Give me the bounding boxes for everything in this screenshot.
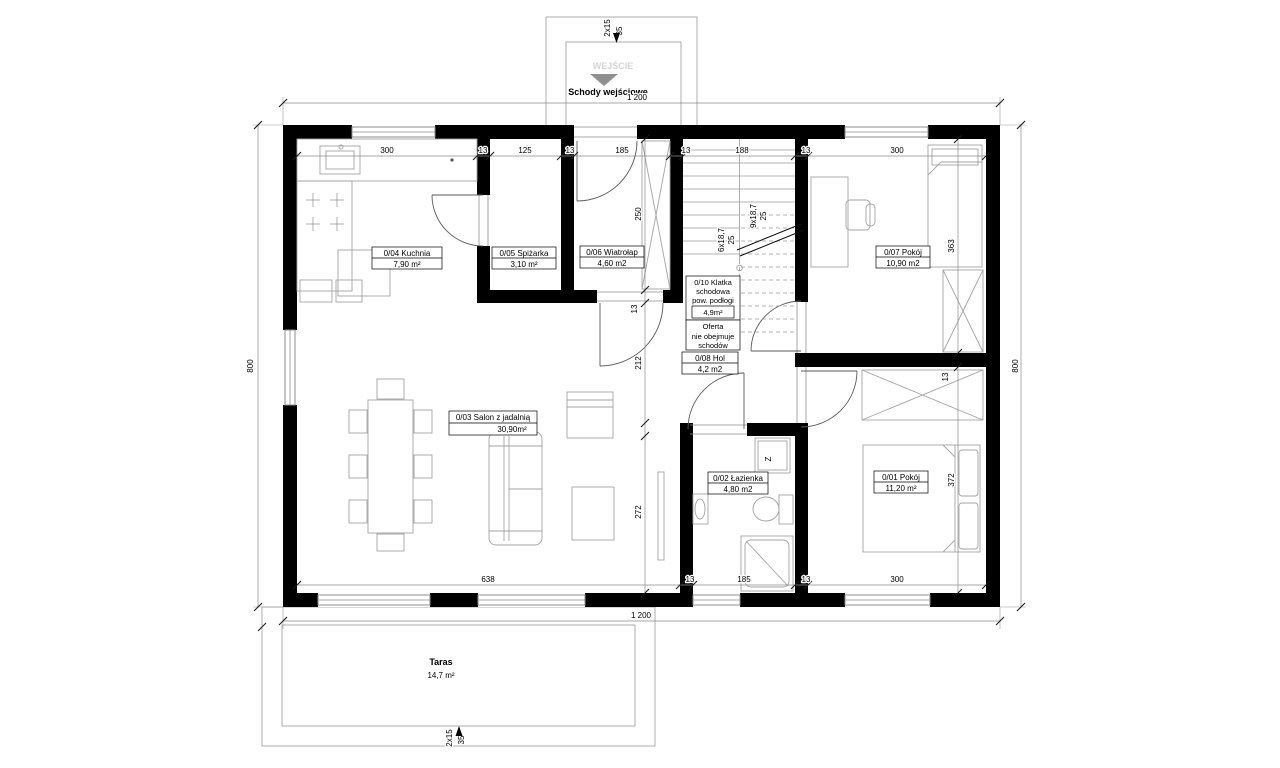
dining-table — [368, 400, 413, 533]
bathroom-fixtures: Z — [693, 438, 793, 591]
svg-text:0/02 Łazienka: 0/02 Łazienka — [713, 474, 763, 483]
terrace-steps-run: 35 — [457, 735, 466, 744]
dim-top-vestibule: 185 — [615, 146, 629, 155]
entrance-porch: WEJŚCIE Schody wejściowe 2x15 35 — [546, 17, 697, 127]
entrance-arrow-icon — [590, 74, 618, 86]
livingroom-window-left — [283, 330, 297, 405]
terrace-door-window-1 — [318, 593, 430, 607]
stairs-lower-run-label: 25 — [727, 235, 736, 244]
bedroom1-label: 0/01 Pokój 11,20 m² — [874, 471, 928, 493]
steps-direction-arrow-icon — [613, 33, 620, 43]
kitchen-label: 0/04 Kuchnia 7,90 m² — [372, 247, 442, 269]
dim-bathroom-depth: 272 — [634, 505, 643, 519]
pantry-door — [432, 195, 490, 246]
bedroom2-door — [751, 301, 806, 353]
dim-top-wall4: 13 — [802, 146, 811, 155]
livingroom-furniture — [349, 379, 664, 560]
svg-text:Oferta: Oferta — [703, 322, 725, 331]
bedroom2-label: 0/07 Pokój 10,90 m2 — [876, 246, 930, 268]
svg-text:4,80 m2: 4,80 m2 — [724, 485, 753, 494]
dim-top-wall2: 13 — [566, 146, 575, 155]
dim-bottom-bedroom1: 300 — [890, 575, 904, 584]
kitchen-window — [352, 125, 435, 139]
dim-bottom-bathroom: 185 — [737, 575, 751, 584]
svg-text:4,9m²: 4,9m² — [703, 308, 723, 317]
bedroom2-window-top — [845, 125, 928, 139]
toilet — [753, 495, 793, 524]
floor-plan-canvas: WEJŚCIE Schody wejściowe 2x15 35 Taras 1… — [0, 0, 1280, 768]
entrance-steps-count: 2x15 — [603, 19, 612, 37]
svg-text:11,20 m²: 11,20 m² — [886, 484, 917, 493]
svg-text:0/06 Wiatrołap: 0/06 Wiatrołap — [586, 248, 638, 257]
terrace-door-window-2 — [478, 593, 585, 607]
dim-total-bottom: 1 200 — [631, 611, 652, 620]
dim-bottom-wall2: 13 — [802, 575, 811, 584]
radiator — [658, 472, 664, 560]
sink — [693, 494, 708, 524]
bed-double — [863, 445, 980, 552]
bedroom1-door — [797, 367, 857, 427]
svg-text:4,60 m2: 4,60 m2 — [598, 259, 627, 268]
vestibule-door — [597, 292, 663, 366]
vestibule-wardrobe — [642, 141, 670, 289]
hob-socket-icon — [450, 158, 453, 161]
svg-text:10,90 m2: 10,90 m2 — [886, 259, 920, 268]
svg-text:0/03 Salon z jadalnią: 0/03 Salon z jadalnią — [456, 413, 531, 422]
dim-bedroom2-depth: 363 — [947, 239, 956, 253]
svg-text:4,2 m2: 4,2 m2 — [698, 365, 723, 374]
dim-height-right: 800 — [1011, 359, 1020, 373]
svg-text:0/08 Hol: 0/08 Hol — [695, 354, 725, 363]
dim-top-bedroom2: 300 — [890, 146, 904, 155]
bathroom-door — [688, 373, 747, 434]
pantry-label: 0/05 Spiżarka 3,10 m² — [492, 247, 556, 269]
svg-text:0/01 Pokój: 0/01 Pokój — [882, 473, 920, 482]
dim-bedroom1-depth: 372 — [947, 473, 956, 487]
svg-text:nie obejmuje: nie obejmuje — [692, 332, 735, 341]
room-labels: 0/04 Kuchnia 7,90 m² 0/05 Spiżarka 3,10 … — [372, 246, 930, 494]
kitchen-furniture — [297, 139, 477, 302]
washer-symbol: Z — [764, 456, 773, 461]
dim-bottom-wall1: 13 — [686, 575, 695, 584]
stairs-upper-flight-label: 9x18,7 — [749, 203, 758, 228]
dim-bottom-livingroom: 638 — [481, 575, 495, 584]
bedroom1-window — [845, 593, 930, 607]
dim-top-stair: 188 — [735, 146, 749, 155]
desk — [811, 177, 848, 267]
terrace: Taras 14,7 m² 2x15 35 — [258, 607, 655, 747]
svg-text:0/04 Kuchnia: 0/04 Kuchnia — [384, 249, 431, 258]
stairs-upper-run-label: 25 — [759, 211, 768, 220]
dim-top-wall1: 13 — [479, 146, 488, 155]
terrace-name: Taras — [429, 657, 452, 667]
washing-machine — [755, 438, 790, 473]
dim-wall-13b: 13 — [941, 372, 950, 381]
wardrobe — [943, 270, 983, 352]
dim-total-top: 1 200 — [627, 93, 648, 102]
staircase-note: Oferta nie obejmuje schodów — [686, 320, 740, 350]
livingroom-label: 0/03 Salon z jadalnią 30,90m² — [449, 411, 537, 435]
terrace-area: 14,7 m² — [427, 671, 454, 680]
dim-hall-depth: 212 — [634, 356, 643, 370]
sofa — [489, 432, 542, 545]
dim-height-left: 800 — [246, 359, 255, 373]
svg-text:7,90 m²: 7,90 m² — [393, 260, 420, 269]
svg-text:pow. podłogi: pow. podłogi — [692, 296, 734, 305]
doors — [432, 125, 857, 434]
bathroom-label: 0/02 Łazienka 4,80 m2 — [708, 472, 768, 494]
staircase-label: 0/10 Klatka schodowa pow. podłogi 4,9m² — [686, 276, 740, 320]
svg-text:0/10 Klatka: 0/10 Klatka — [694, 278, 732, 287]
dim-vestibule-depth: 250 — [634, 207, 643, 221]
svg-text:schodowa: schodowa — [696, 287, 731, 296]
coffee-table — [572, 487, 614, 540]
armchair — [567, 392, 613, 438]
dim-top-pantry: 125 — [518, 146, 532, 155]
bedroom1-furniture — [862, 370, 983, 552]
terrace-steps-count: 2x15 — [445, 729, 454, 747]
bathroom-window — [693, 593, 740, 607]
entrance-sign: WEJŚCIE — [593, 60, 634, 71]
dim-top-kitchen: 300 — [380, 146, 394, 155]
floor-plan-drawing: WEJŚCIE Schody wejściowe 2x15 35 Taras 1… — [0, 0, 1280, 768]
svg-text:0/07 Pokój: 0/07 Pokój — [884, 248, 922, 257]
dim-top-wall3: 13 — [682, 146, 691, 155]
svg-text:0/05 Spiżarka: 0/05 Spiżarka — [500, 249, 549, 258]
stairs-lower-flight-label: 6x18,7 — [717, 227, 726, 252]
hall-label: 0/08 Hol 4,2 m2 — [682, 352, 738, 374]
stove-burners-icon — [306, 193, 344, 231]
svg-text:3,10 m²: 3,10 m² — [510, 260, 537, 269]
entrance-door — [574, 125, 637, 201]
wardrobe — [862, 370, 983, 420]
vestibule-label: 0/06 Wiatrołap 4,60 m2 — [580, 246, 644, 268]
terrace-steps-arrow-icon — [456, 726, 463, 736]
dim-wall-13a: 13 — [630, 304, 639, 313]
svg-text:30,90m²: 30,90m² — [497, 425, 527, 434]
svg-text:schodów: schodów — [698, 341, 728, 350]
